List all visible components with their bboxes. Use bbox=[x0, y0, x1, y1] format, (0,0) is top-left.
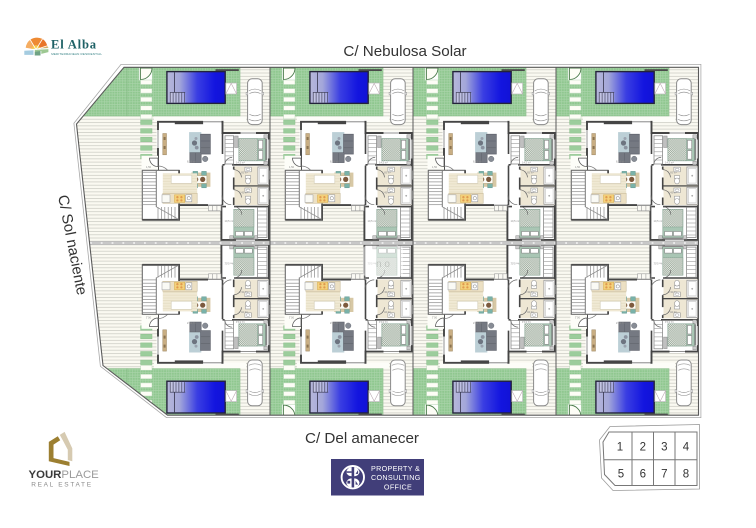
svg-text:2: 2 bbox=[640, 442, 646, 454]
svg-text:1,85 m²: 1,85 m² bbox=[239, 310, 248, 314]
svg-text:2,45 m²: 2,45 m² bbox=[668, 191, 677, 195]
svg-text:1,85 m²: 1,85 m² bbox=[382, 171, 391, 175]
svg-text:1,85 m²: 1,85 m² bbox=[239, 171, 248, 175]
svg-text:2,45 m²: 2,45 m² bbox=[239, 191, 248, 195]
svg-text:14,5 m²: 14,5 m² bbox=[379, 320, 388, 324]
svg-text:8,28 m²: 8,28 m² bbox=[616, 321, 625, 325]
svg-text:1,50: 1,50 bbox=[146, 165, 152, 169]
svg-text:5: 5 bbox=[618, 469, 624, 481]
svg-text:El Alba: El Alba bbox=[51, 38, 97, 52]
svg-text:14,5 m²: 14,5 m² bbox=[236, 161, 245, 165]
svg-text:1,50: 1,50 bbox=[575, 316, 581, 320]
svg-text:8,28 m²: 8,28 m² bbox=[187, 160, 196, 164]
svg-text:2,45 m²: 2,45 m² bbox=[525, 191, 534, 195]
svg-text:10,5 m²: 10,5 m² bbox=[225, 219, 234, 223]
svg-text:4: 4 bbox=[683, 442, 690, 454]
svg-text:10,5 m²: 10,5 m² bbox=[368, 219, 377, 223]
svg-text:10,5 m²: 10,5 m² bbox=[654, 219, 663, 223]
svg-text:1,50: 1,50 bbox=[289, 165, 295, 169]
svg-text:PROPERTY &: PROPERTY & bbox=[371, 464, 420, 473]
svg-text:1,50: 1,50 bbox=[289, 316, 295, 320]
svg-text:1,85 m²: 1,85 m² bbox=[525, 310, 534, 314]
svg-text:1,85 m²: 1,85 m² bbox=[668, 310, 677, 314]
svg-text:2,45 m²: 2,45 m² bbox=[525, 290, 534, 294]
svg-text:1: 1 bbox=[617, 442, 623, 454]
svg-text:2,45 m²: 2,45 m² bbox=[382, 290, 391, 294]
svg-text:1,50: 1,50 bbox=[432, 165, 438, 169]
svg-text:14,5 m²: 14,5 m² bbox=[522, 161, 531, 165]
svg-text:1,85 m²: 1,85 m² bbox=[382, 310, 391, 314]
svg-text:C/ Nebulosa Solar: C/ Nebulosa Solar bbox=[343, 43, 466, 60]
svg-text:14,5 m²: 14,5 m² bbox=[379, 161, 388, 165]
svg-text:2,45 m²: 2,45 m² bbox=[382, 191, 391, 195]
svg-text:10,5 m²: 10,5 m² bbox=[511, 219, 520, 223]
svg-text:10,5 m²: 10,5 m² bbox=[511, 262, 520, 266]
svg-text:1,50: 1,50 bbox=[432, 316, 438, 320]
svg-text:10,5 m²: 10,5 m² bbox=[654, 262, 663, 266]
svg-text:8: 8 bbox=[683, 469, 689, 481]
svg-text:2,45 m²: 2,45 m² bbox=[668, 290, 677, 294]
svg-text:CONSULTING: CONSULTING bbox=[371, 473, 421, 482]
svg-text:1,85 m²: 1,85 m² bbox=[668, 171, 677, 175]
svg-text:MEDITERRANEAN RESIDENTIAL: MEDITERRANEAN RESIDENTIAL bbox=[51, 52, 102, 56]
svg-text:8,28 m²: 8,28 m² bbox=[187, 321, 196, 325]
svg-text:14,5 m²: 14,5 m² bbox=[665, 161, 674, 165]
svg-text:1,50: 1,50 bbox=[146, 316, 152, 320]
svg-text:8,28 m²: 8,28 m² bbox=[473, 321, 482, 325]
svg-text:8,28 m²: 8,28 m² bbox=[330, 160, 339, 164]
svg-text:1,50: 1,50 bbox=[575, 165, 581, 169]
svg-text:REAL ESTATE: REAL ESTATE bbox=[31, 482, 93, 489]
svg-text:2,45 m²: 2,45 m² bbox=[239, 290, 248, 294]
svg-text:n o: n o bbox=[376, 259, 390, 270]
svg-text:14,5 m²: 14,5 m² bbox=[665, 320, 674, 324]
svg-text:8,28 m²: 8,28 m² bbox=[330, 321, 339, 325]
svg-text:7: 7 bbox=[661, 469, 667, 481]
svg-text:14,5 m²: 14,5 m² bbox=[522, 320, 531, 324]
svg-text:3: 3 bbox=[661, 442, 667, 454]
svg-text:10,5 m²: 10,5 m² bbox=[225, 262, 234, 266]
svg-text:6: 6 bbox=[640, 469, 646, 481]
svg-text:8,28 m²: 8,28 m² bbox=[616, 160, 625, 164]
svg-text:OFFICE: OFFICE bbox=[384, 482, 412, 491]
svg-text:8,28 m²: 8,28 m² bbox=[473, 160, 482, 164]
svg-text:1,85 m²: 1,85 m² bbox=[525, 171, 534, 175]
svg-text:14,5 m²: 14,5 m² bbox=[236, 320, 245, 324]
svg-text:C/ Del amanecer: C/ Del amanecer bbox=[305, 430, 419, 447]
svg-text:YOURPLACE: YOURPLACE bbox=[29, 469, 100, 481]
